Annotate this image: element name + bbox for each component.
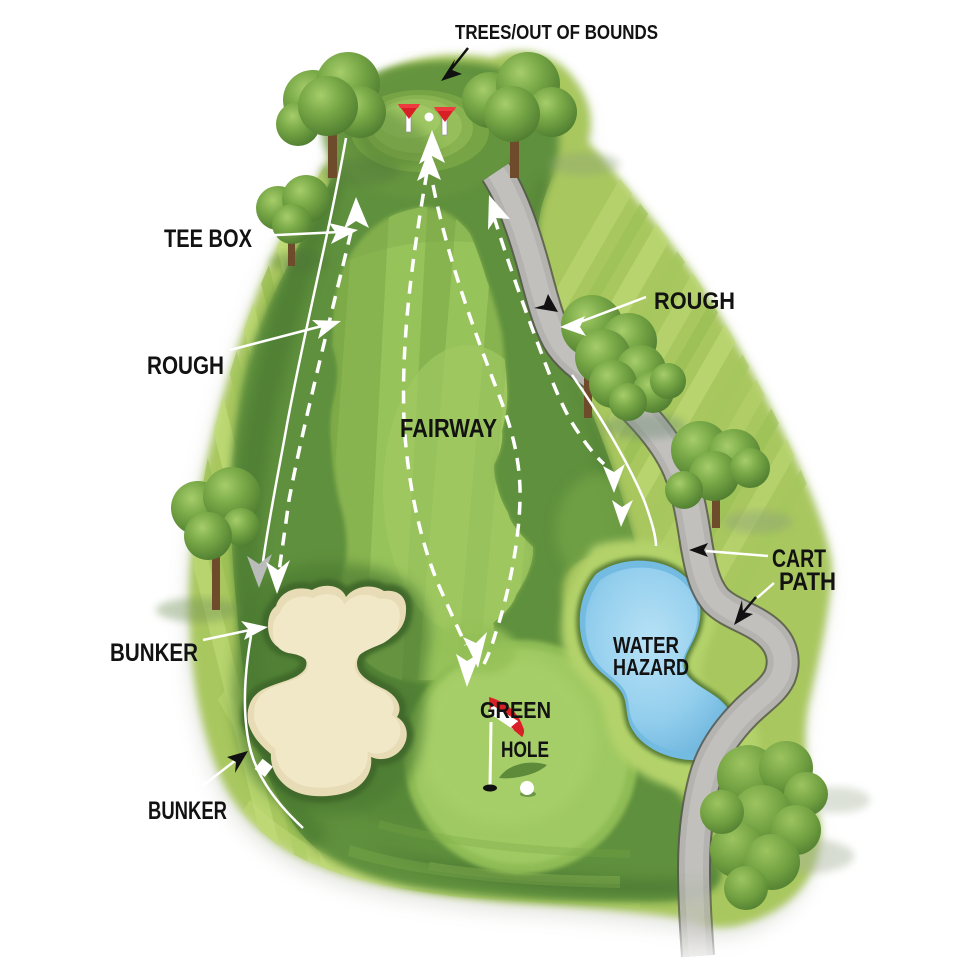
svg-text:TEE BOX: TEE BOX: [164, 225, 252, 253]
svg-text:BUNKER: BUNKER: [110, 639, 198, 667]
svg-text:GREEN: GREEN: [480, 697, 551, 723]
svg-text:TREES/OUT OF BOUNDS: TREES/OUT OF BOUNDS: [455, 22, 658, 44]
svg-text:HAZARD: HAZARD: [613, 654, 689, 680]
svg-text:BUNKER: BUNKER: [148, 797, 227, 825]
svg-text:PATH: PATH: [779, 568, 836, 596]
svg-text:ROUGH: ROUGH: [147, 352, 224, 380]
svg-text:FAIRWAY: FAIRWAY: [400, 413, 497, 443]
svg-text:ROUGH: ROUGH: [654, 288, 735, 315]
svg-text:HOLE: HOLE: [501, 737, 549, 762]
